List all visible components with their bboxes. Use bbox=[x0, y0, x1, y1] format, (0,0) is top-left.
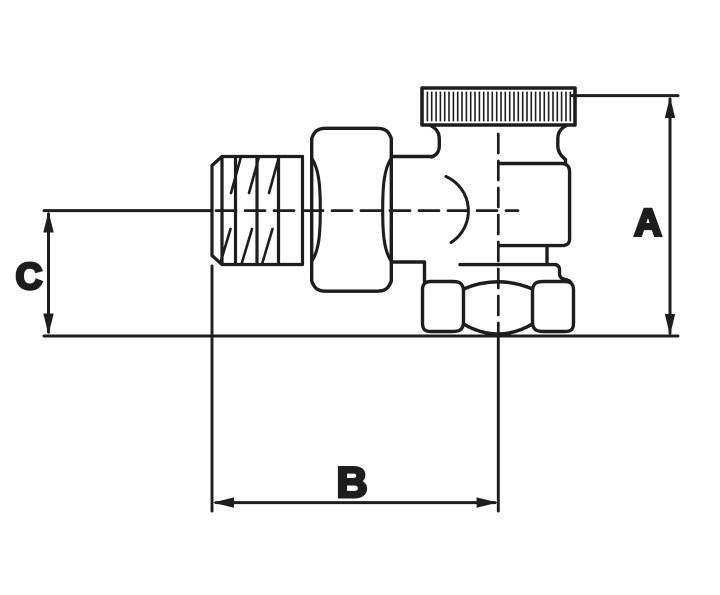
body-inner-step bbox=[460, 246, 556, 265]
valve-drawing bbox=[212, 88, 575, 336]
dimension-b: B bbox=[212, 266, 498, 511]
body-right-socket bbox=[500, 164, 570, 246]
body-bottom-edge bbox=[391, 262, 424, 282]
b-arrowhead-left bbox=[213, 497, 234, 507]
dimension-lines: C A B bbox=[16, 96, 678, 511]
c-arrowhead-up bbox=[43, 211, 53, 232]
centerlines bbox=[216, 134, 518, 336]
a-arrowhead-down bbox=[665, 314, 675, 335]
dimension-c-label: C bbox=[16, 256, 43, 297]
knurled-cap bbox=[422, 88, 575, 125]
a-arrowhead-up bbox=[665, 97, 675, 118]
dimension-c: C bbox=[16, 211, 212, 335]
outlet-nut-left-facet bbox=[423, 282, 464, 332]
technical-drawing-page: C A B bbox=[0, 0, 720, 595]
dimension-a: A bbox=[571, 96, 678, 336]
body-notch-curve bbox=[556, 265, 571, 282]
c-arrowhead-down bbox=[43, 314, 53, 335]
dimension-a-label: A bbox=[634, 203, 661, 245]
outlet-nut-right-facet bbox=[533, 282, 574, 332]
knurl-hatching bbox=[427, 92, 570, 122]
valve-dimension-drawing: C A B bbox=[0, 0, 720, 595]
dimension-b-label: B bbox=[336, 459, 367, 507]
b-arrowhead-right bbox=[477, 497, 498, 507]
valve-body bbox=[391, 157, 570, 283]
